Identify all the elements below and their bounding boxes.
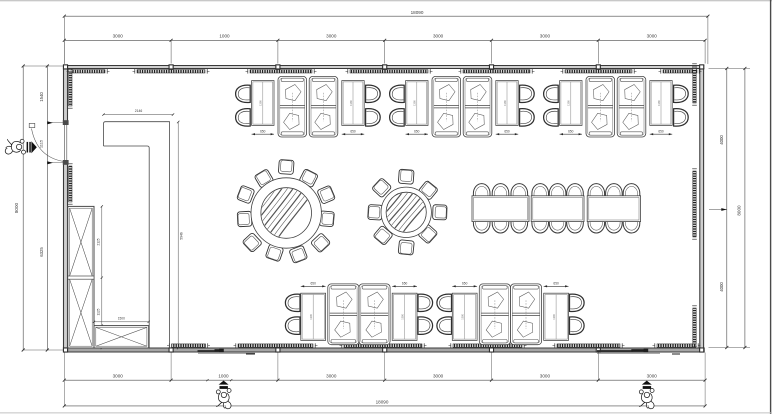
svg-text:18090: 18090 bbox=[411, 10, 424, 15]
svg-text:1380: 1380 bbox=[461, 313, 465, 319]
svg-text:1380: 1380 bbox=[503, 100, 507, 106]
svg-text:1380: 1380 bbox=[567, 100, 571, 106]
svg-text:1380: 1380 bbox=[259, 100, 263, 106]
svg-text:3000: 3000 bbox=[647, 34, 658, 39]
svg-text:650: 650 bbox=[504, 129, 510, 133]
svg-text:3000: 3000 bbox=[326, 373, 337, 378]
svg-text:8000: 8000 bbox=[736, 205, 741, 216]
svg-text:1500: 1500 bbox=[118, 317, 125, 321]
svg-text:4000: 4000 bbox=[719, 282, 724, 292]
svg-text:650: 650 bbox=[462, 281, 468, 285]
svg-text:1380: 1380 bbox=[400, 313, 404, 319]
svg-text:8000: 8000 bbox=[14, 202, 19, 213]
svg-text:3000: 3000 bbox=[540, 34, 551, 39]
svg-text:3000: 3000 bbox=[647, 373, 658, 378]
svg-text:3000: 3000 bbox=[326, 34, 337, 39]
svg-text:1380: 1380 bbox=[413, 100, 417, 106]
svg-text:3000: 3000 bbox=[113, 34, 124, 39]
svg-text:1125: 1125 bbox=[97, 308, 101, 315]
svg-text:650: 650 bbox=[260, 129, 266, 133]
svg-text:650: 650 bbox=[658, 129, 664, 133]
svg-text:1000: 1000 bbox=[218, 373, 229, 378]
svg-text:650: 650 bbox=[402, 281, 408, 285]
svg-text:3000: 3000 bbox=[540, 373, 551, 378]
svg-text:1000: 1000 bbox=[219, 34, 230, 39]
svg-text:18090: 18090 bbox=[376, 400, 389, 405]
svg-text:650: 650 bbox=[553, 281, 559, 285]
svg-text:650: 650 bbox=[414, 129, 420, 133]
svg-text:1540: 1540 bbox=[39, 92, 44, 102]
svg-text:1380: 1380 bbox=[657, 100, 661, 106]
svg-text:3000: 3000 bbox=[433, 34, 444, 39]
svg-text:4000: 4000 bbox=[719, 135, 724, 145]
svg-text:2125: 2125 bbox=[97, 238, 101, 245]
svg-text:1380: 1380 bbox=[309, 313, 313, 319]
svg-text:5946: 5946 bbox=[180, 232, 184, 240]
svg-text:1380: 1380 bbox=[552, 313, 556, 319]
svg-text:650: 650 bbox=[568, 129, 574, 133]
svg-text:650: 650 bbox=[311, 281, 317, 285]
svg-text:3000: 3000 bbox=[433, 373, 444, 378]
svg-text:2146: 2146 bbox=[135, 109, 143, 113]
svg-text:3000: 3000 bbox=[113, 373, 124, 378]
svg-text:1380: 1380 bbox=[349, 100, 353, 106]
svg-text:1115: 1115 bbox=[39, 139, 44, 148]
svg-text:650: 650 bbox=[350, 129, 356, 133]
svg-text:6325: 6325 bbox=[39, 247, 44, 257]
